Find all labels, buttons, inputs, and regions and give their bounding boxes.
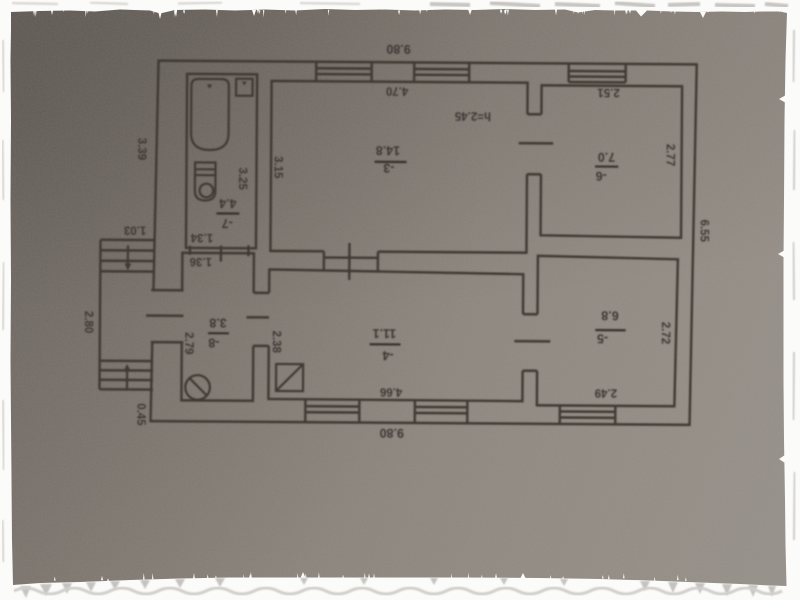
svg-text:6.55: 6.55 xyxy=(698,220,710,243)
svg-text:4.66: 4.66 xyxy=(380,385,402,397)
svg-text:-6: -6 xyxy=(596,169,607,183)
svg-text:2.72: 2.72 xyxy=(659,322,671,344)
svg-text:4.4: 4.4 xyxy=(219,196,237,210)
svg-text:1.34: 1.34 xyxy=(190,231,213,243)
svg-text:9.80: 9.80 xyxy=(386,42,410,56)
svg-text:-4: -4 xyxy=(382,348,393,362)
svg-text:-5: -5 xyxy=(597,331,608,345)
svg-text:2.79: 2.79 xyxy=(182,332,194,354)
svg-text:-7: -7 xyxy=(222,216,233,230)
svg-text:7.0: 7.0 xyxy=(598,150,616,164)
svg-text:-8: -8 xyxy=(208,335,219,349)
svg-text:9.80: 9.80 xyxy=(380,426,404,440)
svg-text:1.03: 1.03 xyxy=(124,223,146,235)
svg-text:3.8: 3.8 xyxy=(209,316,227,330)
svg-text:4.70: 4.70 xyxy=(386,84,408,96)
svg-text:0.45: 0.45 xyxy=(134,403,146,426)
svg-text:2.77: 2.77 xyxy=(664,144,676,166)
svg-text:2.38: 2.38 xyxy=(270,331,282,354)
svg-text:3.39: 3.39 xyxy=(135,138,147,160)
svg-text:h=2.45: h=2.45 xyxy=(454,109,491,121)
svg-text:2.80: 2.80 xyxy=(82,311,94,333)
svg-text:-3: -3 xyxy=(383,161,394,175)
svg-text:11.1: 11.1 xyxy=(373,326,397,340)
svg-text:14.8: 14.8 xyxy=(376,143,400,157)
svg-text:3.15: 3.15 xyxy=(271,156,283,179)
svg-text:2.51: 2.51 xyxy=(597,86,620,98)
svg-text:6.8: 6.8 xyxy=(601,308,619,322)
svg-text:1.36: 1.36 xyxy=(190,255,212,267)
svg-text:3.25: 3.25 xyxy=(236,167,248,190)
svg-text:2.49: 2.49 xyxy=(595,386,617,398)
